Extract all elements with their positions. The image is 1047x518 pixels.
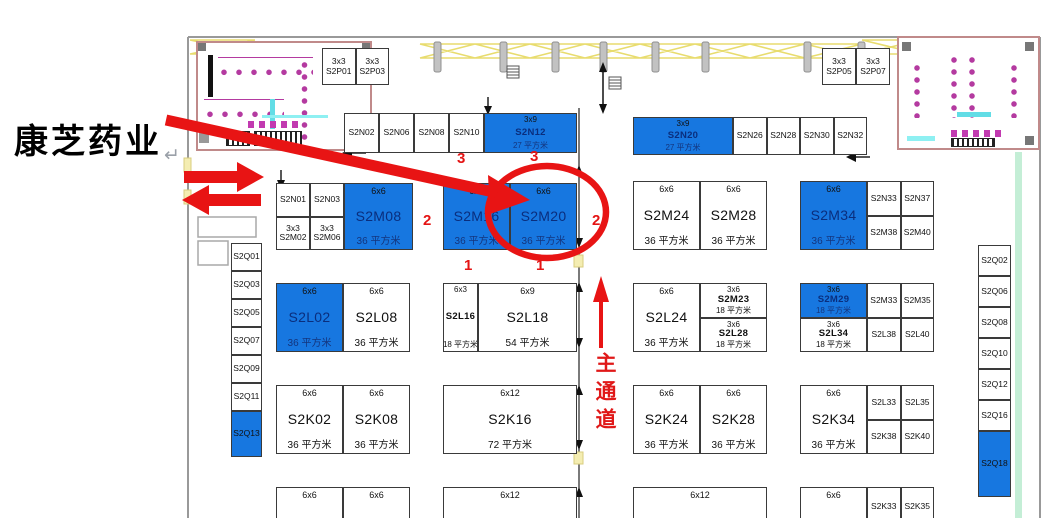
booth-area: 36 平方米 [355,440,399,451]
booth-label: S2Q02 [981,256,1007,266]
booth-size: 6x6 [302,490,317,500]
booth-S2M16: 6x6S2M1636 平方米 [443,183,510,250]
booth-code: S2N12 [515,128,546,138]
restroom-right [897,36,1040,150]
booth-label: S2N28 [770,131,796,141]
booth-code: S2M20 [521,209,567,224]
booth-label: S2L35 [905,398,930,408]
booth-code: S2L34 [819,329,849,339]
restroom-fixtures-col [1007,62,1021,118]
booth-group-n-left: S2N02S2N06S2N08S2N103x9S2N1227 平方米 [344,113,577,153]
booth-code: S2M29 [818,295,850,305]
booth-S2Q13: S2Q13 [231,411,262,457]
booth-cell: 6x6 [343,487,410,518]
booth-label: S2Q10 [981,349,1007,359]
booth-area: 36 平方米 [455,236,499,247]
booth-label: S2M38 [870,228,897,238]
booth-label: S2N10 [454,128,480,138]
exhibition-floor-plan: 3x3 S2P013x3 S2P03 3x3 S2P053x3 S2P07 S2… [0,0,1047,518]
booth-size: 6x6 [826,388,841,398]
booth-size: 6x9 [520,286,535,296]
booth-subgroup: S2M33S2M35S2L38S2L40 [867,283,934,352]
booth-S2M08: 6x6S2M0836 平方米 [344,183,413,250]
booth-label: 3x3 S2P03 [359,57,385,76]
booth-S2L16: 6x3S2L1618 平方米 [443,283,478,352]
booth-area: 36 平方米 [645,338,689,349]
booth-subgroup: S2N01S2N033x3 S2M023x3 S2M06 [276,183,344,250]
booth-S2L02: 6x6S2L0236 平方米 [276,283,343,352]
booth-size: 6x6 [302,388,317,398]
sink-counter [957,112,991,117]
booth-label: S2L38 [871,330,896,340]
booth-code: S2L24 [646,310,688,325]
booth-size: 3x9 [524,116,537,124]
entrance-arrow [599,62,607,114]
booth-label: S2Q07 [233,336,259,346]
booth-S2N30: S2N30 [800,117,834,155]
booth-S2P05: 3x3 S2P05 [822,48,856,85]
booth-label: S2Q18 [981,459,1007,469]
booth-area: 18 平方米 [716,306,751,315]
booth-S2N06: S2N06 [379,113,414,153]
booth-label: 3x3 S2P07 [860,57,886,76]
booth-label: S2L33 [871,398,896,408]
booth-area: 36 平方米 [645,236,689,247]
booth-cell: 6x6 [276,487,343,518]
booth-label: S2N02 [349,128,375,138]
booth-S2Q11: S2Q11 [231,383,262,411]
booth-S2K02: 6x6S2K0236 平方米 [276,385,343,454]
booth-S2N33: S2N33 [867,181,901,216]
booth-area: 36 平方米 [712,440,756,451]
booth-label: S2N01 [280,195,306,205]
booth-size: 6x12 [500,388,520,398]
booth-size: 6x12 [500,490,520,500]
booth-group-k-mid: 6x12S2K1672 平方米 [443,385,577,454]
booth-label: S2Q06 [981,287,1007,297]
booth-S2M23: 3x6S2M2318 平方米 [700,283,767,318]
booth-group-bottom-mid: 6x12 [443,487,577,518]
booth-code: S2K16 [488,412,532,427]
booth-label: S2N26 [737,131,763,141]
restroom-fixtures-col [947,54,961,118]
booth-subgroup: 3x6S2M2918 平方米3x6S2L3418 平方米 [800,283,867,352]
booth-code: S2L28 [719,329,749,339]
booth-area: 36 平方米 [355,338,399,349]
booth-S2K34: 6x6S2K3436 平方米 [800,385,867,454]
booth-group-k-r2: 6x6S2K3436 平方米S2L33S2L35S2K38S2K40 [800,385,934,454]
booth-label: S2Q08 [981,318,1007,328]
booth-size: 6x6 [302,286,317,296]
booth-S2N02: S2N02 [344,113,379,153]
booth-label: S2K33 [871,502,897,512]
count-marker: 1 [536,258,544,273]
booth-size: 6x6 [469,186,484,196]
booth-S2Q03: S2Q03 [231,271,262,299]
booth-S2M06: 3x3 S2M06 [310,217,344,251]
booth-S2Q05: S2Q05 [231,299,262,327]
booth-group-l-left: 6x6S2L0236 平方米6x6S2L0836 平方米 [276,283,410,352]
booth-label: 3x3 S2P05 [826,57,852,76]
booth-S2P01: 3x3 S2P01 [322,48,356,85]
green-strip [1015,152,1022,518]
wall-corner [198,43,206,51]
company-name: 康芝药业 [14,122,162,162]
booth-size: 6x6 [826,184,841,194]
count-marker: 3 [530,149,538,164]
booth-size: 6x6 [659,388,674,398]
booth-subgroup: 3x6S2M2318 平方米3x6S2L2818 平方米 [700,283,767,352]
booth-area: 36 平方米 [645,440,689,451]
booth-S2Q18: S2Q18 [978,431,1011,497]
booth-S2N10: S2N10 [449,113,484,153]
booth-group-bottom-left: 6x66x6 [276,487,410,518]
booth-label: S2N32 [837,131,863,141]
booth-area: 18 平方米 [443,340,478,349]
booth-cell: 6x12 [443,487,577,518]
booth-code: S2M16 [454,209,500,224]
booth-S2M28: 6x6S2M2836 平方米 [700,181,767,250]
booth-code: S2L08 [356,310,398,325]
booth-label: S2M33 [870,296,897,306]
booth-size: 3x6 [827,286,840,294]
booth-S2M20: 6x6S2M2036 平方米 [510,183,577,250]
booth-label: S2Q12 [981,380,1007,390]
booth-subgroup: S2L33S2L35S2K38S2K40 [867,385,934,454]
booth-S2Q09: S2Q09 [231,355,262,383]
booth-S2M40: S2M40 [901,216,935,251]
booth-S2L08: 6x6S2L0836 平方米 [343,283,410,352]
booth-code: S2K34 [812,412,856,427]
booth-code: S2K02 [288,412,332,427]
booth-size: 6x3 [454,286,467,294]
booth-code: S2M34 [811,208,857,223]
counter-line [907,136,935,141]
booth-code: S2M08 [356,209,402,224]
booth-group-m-r2: 6x6S2M3436 平方米S2N33S2N37S2M38S2M40 [800,181,934,250]
booth-label: S2N08 [419,128,445,138]
booth-group-l-mid: 6x3S2L1618 平方米6x9S2L1854 平方米 [443,283,577,352]
booth-code: S2K28 [712,412,756,427]
booth-S2L35: S2L35 [901,385,935,420]
booth-S2N03: S2N03 [310,183,344,217]
wall-corner [1025,136,1034,145]
return-mark-icon: ↵ [164,136,180,176]
booth-S2N28: S2N28 [767,117,801,155]
booth-S2L33: S2L33 [867,385,901,420]
booth-size: 3x6 [727,286,740,294]
booth-label: S2N03 [314,195,340,205]
booth-size: 6x6 [536,186,551,196]
booth-code: S2L18 [507,310,549,325]
booth-area: 54 平方米 [506,338,550,349]
booth-S2K28: 6x6S2K2836 平方米 [700,385,767,454]
stairs-hatch [254,131,302,146]
booth-label: S2Q05 [233,308,259,318]
booth-label: S2Q11 [234,392,260,402]
partition-bar [208,55,213,97]
booth-S2M33: S2M33 [867,283,901,318]
booth-label: S2L40 [905,330,930,340]
booth-S2L40: S2L40 [901,318,935,353]
counter-line [262,115,328,118]
booth-size: 6x6 [726,388,741,398]
booth-size: 6x6 [369,490,384,500]
booth-area: 36 平方米 [522,236,566,247]
booth-label: S2N30 [804,131,830,141]
booth-group-bottom-r1: 6x12 [633,487,767,518]
booth-area: 36 平方米 [812,440,856,451]
booth-S2K38: S2K38 [867,420,901,455]
booth-group-m-r1: 6x6S2M2436 平方米6x6S2M2836 平方米 [633,181,767,250]
booth-size: 6x6 [726,184,741,194]
booth-S2Q08: S2Q08 [978,307,1011,338]
booth-label: S2Q09 [233,364,259,374]
booth-group-k-r1: 6x6S2K2436 平方米6x6S2K2836 平方米 [633,385,767,454]
booth-S2N26: S2N26 [733,117,767,155]
booth-subgroup: S2N33S2N37S2M38S2M40 [867,181,934,250]
booth-label: S2K38 [871,432,897,442]
booth-S2M24: 6x6S2M2436 平方米 [633,181,700,250]
booth-code: S2L02 [289,310,331,325]
booth-S2K08: 6x6S2K0836 平方米 [343,385,410,454]
booth-label: S2N33 [871,194,897,204]
booth-area: 18 平方米 [816,306,851,315]
booth-group-l-r1: 6x6S2L2436 平方米3x6S2M2318 平方米3x6S2L2818 平… [633,283,767,352]
booth-size: 6x6 [369,388,384,398]
stairs-hatch [951,138,995,147]
booth-label: 3x3 S2P01 [326,57,352,76]
booth-S2P07: 3x3 S2P07 [856,48,890,85]
stairs-hatch [226,131,250,146]
booth-area: 36 平方米 [712,236,756,247]
wall-corner [902,42,911,51]
column-block [199,133,209,143]
fixture-dots [951,130,1003,137]
booth-S2N37: S2N37 [901,181,935,216]
booth-group-q-right: S2Q02S2Q06S2Q08S2Q10S2Q12S2Q16S2Q18 [978,245,1011,497]
wall-corner [1025,42,1034,51]
booth-S2L38: S2L38 [867,318,901,353]
booth-area: 18 平方米 [716,340,751,349]
booth-label: S2N06 [384,128,410,138]
booth-area: 18 平方米 [816,340,851,349]
booth-area: 36 平方米 [288,440,332,451]
booth-S2Q02: S2Q02 [978,245,1011,276]
booth-label: S2Q03 [233,280,259,290]
fixture-dots [248,121,300,128]
booth-group-l-r2: 3x6S2M2918 平方米3x6S2L3418 平方米S2M33S2M35S2… [800,283,934,352]
booth-label: S2Q13 [233,429,259,439]
booth-size: 6x6 [371,186,386,196]
restroom-fixtures-col [965,54,979,118]
booth-label: S2M35 [904,296,931,306]
booth-area: 36 平方米 [357,236,401,247]
booth-group-m-left: S2N01S2N033x3 S2M023x3 S2M066x6S2M0836 平… [276,183,413,250]
booth-area: 27 平方米 [665,143,700,152]
booth-S2L18: 6x9S2L1854 平方米 [478,283,577,352]
booth-S2L24: 6x6S2L2436 平方米 [633,283,700,352]
booth-area: 72 平方米 [488,440,532,451]
booth-S2L34: 3x6S2L3418 平方米 [800,318,867,353]
count-marker: 3 [457,151,465,166]
booth-code: S2K24 [645,412,689,427]
count-marker: 1 [464,258,472,273]
booth-label: 3x3 S2M02 [280,224,307,243]
booth-size: 6x6 [826,490,841,500]
company-callout: 康芝药业 ↵ [14,122,180,176]
booth-label: 3x3 S2M06 [314,224,341,243]
booth-group-k-left: 6x6S2K0236 平方米6x6S2K0836 平方米 [276,385,410,454]
booth-group-p-right: 3x3 S2P053x3 S2P07 [822,48,890,85]
booth-code: S2L16 [446,312,476,322]
booth-cell: 6x12 [633,487,767,518]
booth-S2Q16: S2Q16 [978,400,1011,431]
booth-group-q-left: S2Q01S2Q03S2Q05S2Q07S2Q09S2Q11S2Q13 [231,243,262,457]
booth-area: 36 平方米 [812,236,856,247]
booth-label: S2K35 [904,502,930,512]
booth-label: S2K40 [904,432,930,442]
booth-cell: 6x6 [800,487,867,518]
booth-code: S2N20 [668,131,699,141]
booth-S2P03: 3x3 S2P03 [356,48,390,85]
booth-size: 6x6 [369,286,384,296]
booth-area: 36 平方米 [288,338,332,349]
booth-code: S2M28 [711,208,757,223]
booth-S2M34: 6x6S2M3436 平方米 [800,181,867,250]
booth-group-n-right: 3x9S2N2027 平方米S2N26S2N28S2N30S2N32 [633,117,867,155]
booth-label: S2M40 [904,228,931,238]
booth-S2K35: S2K35 [901,487,935,518]
booth-S2K33: S2K33 [867,487,901,518]
booth-code: S2K08 [355,412,399,427]
booth-label: S2Q01 [233,252,259,262]
booth-code: S2M23 [718,295,750,305]
booth-size: 3x9 [677,120,690,128]
booth-size: 6x6 [659,286,674,296]
restroom-fixtures-row [218,57,313,84]
booth-S2K16: 6x12S2K1672 平方米 [443,385,577,454]
booth-S2N32: S2N32 [834,117,868,155]
booth-S2K24: 6x6S2K2436 平方米 [633,385,700,454]
booth-group-m-mid: 6x6S2M1636 平方米6x6S2M2036 平方米 [443,183,577,250]
booth-S2N12: 3x9S2N1227 平方米 [484,113,577,153]
booth-S2Q06: S2Q06 [978,276,1011,307]
booth-code: S2M24 [644,208,690,223]
booth-S2N20: 3x9S2N2027 平方米 [633,117,733,155]
booth-S2M02: 3x3 S2M02 [276,217,310,251]
count-marker: 2 [592,213,600,228]
booth-S2M38: S2M38 [867,216,901,251]
count-marker: 2 [423,213,431,228]
booth-S2N01: S2N01 [276,183,310,217]
booth-label: S2Q16 [981,411,1007,421]
booth-S2Q12: S2Q12 [978,369,1011,400]
main-aisle-label: 主通道 [589,352,619,462]
booth-group-bottom-r2: 6x6S2K33S2K35 [800,487,934,518]
booth-group-p-left: 3x3 S2P013x3 S2P03 [322,48,389,85]
booth-S2K40: S2K40 [901,420,935,455]
booth-S2Q10: S2Q10 [978,338,1011,369]
restroom-fixtures-col [909,62,925,118]
booth-S2M29: 3x6S2M2918 平方米 [800,283,867,318]
booth-S2Q01: S2Q01 [231,243,262,271]
booth-S2L28: 3x6S2L2818 平方米 [700,318,767,353]
booth-S2N08: S2N08 [414,113,449,153]
booth-label: S2N37 [904,194,930,204]
booth-size: 6x6 [659,184,674,194]
booth-S2M35: S2M35 [901,283,935,318]
booth-size: 6x12 [690,490,710,500]
booth-S2Q07: S2Q07 [231,327,262,355]
